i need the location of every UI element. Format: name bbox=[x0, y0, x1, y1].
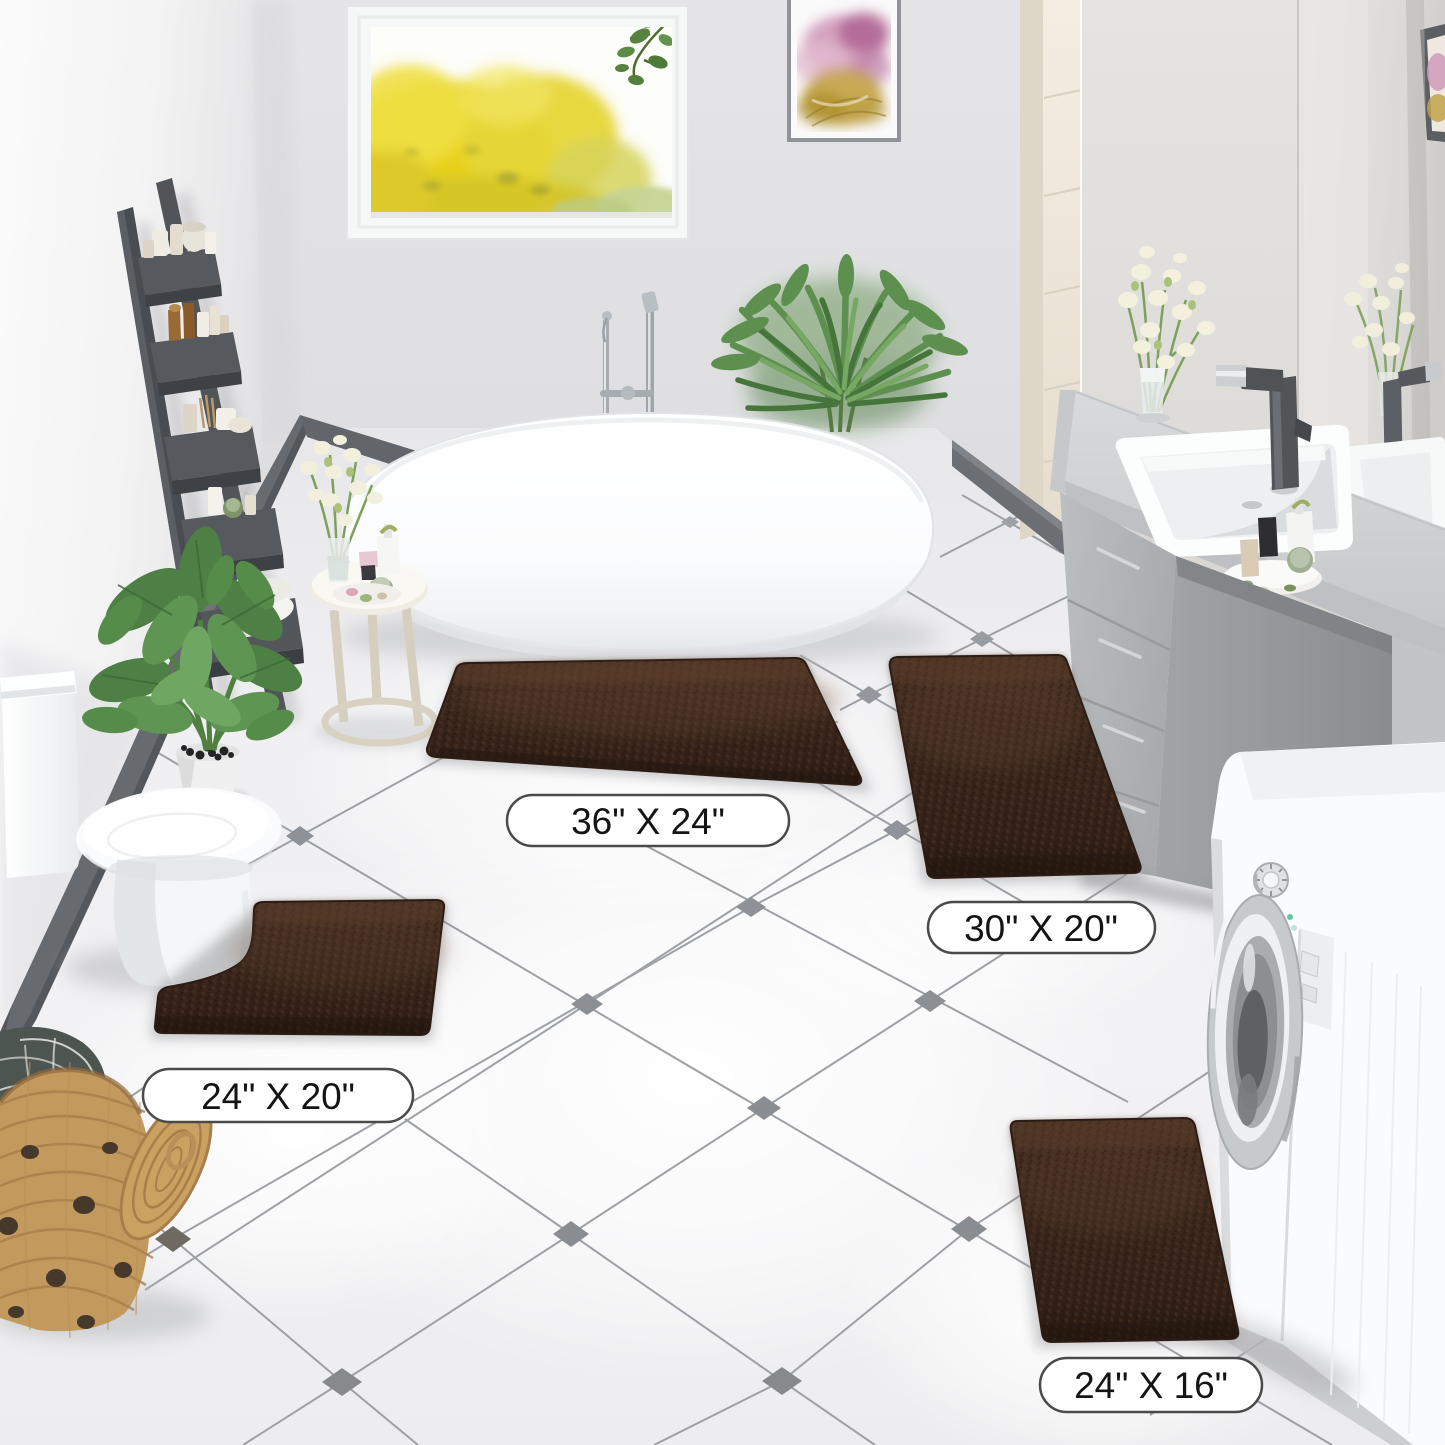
svg-text:36" X 24": 36" X 24" bbox=[571, 801, 725, 842]
svg-text:24" X 20": 24" X 20" bbox=[201, 1076, 355, 1117]
svg-text:30" X 20": 30" X 20" bbox=[964, 908, 1118, 949]
svg-text:24" X 16": 24" X 16" bbox=[1074, 1365, 1228, 1406]
